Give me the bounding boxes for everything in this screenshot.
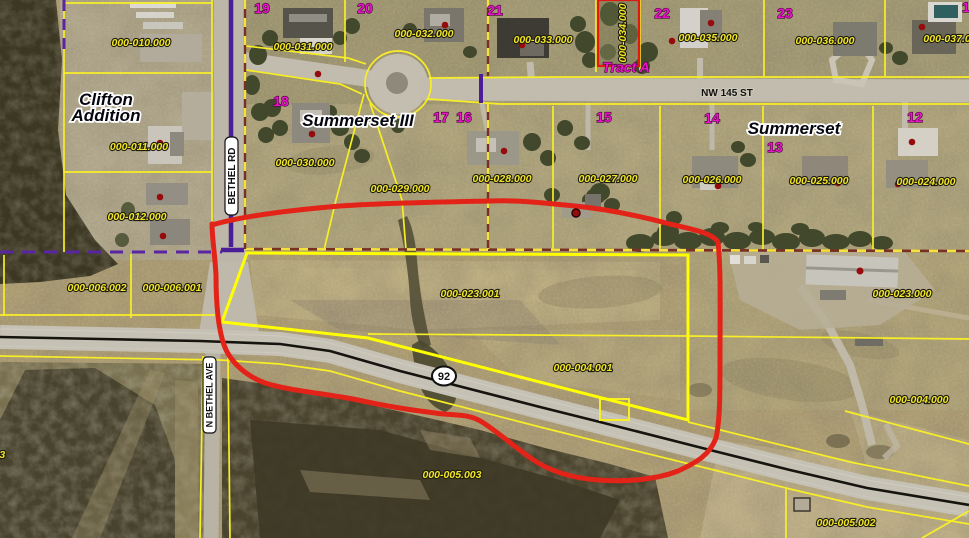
svg-text:000-036.000: 000-036.000 <box>796 35 855 47</box>
svg-text:13: 13 <box>767 139 783 155</box>
svg-text:20: 20 <box>357 0 373 16</box>
svg-text:000-034.000: 000-034.000 <box>617 3 629 62</box>
svg-text:17: 17 <box>433 109 449 125</box>
svg-text:N BETHEL AVE: N BETHEL AVE <box>205 363 215 428</box>
svg-text:Summerset: Summerset <box>748 119 842 138</box>
svg-text:000-005.003: 000-005.003 <box>423 469 482 481</box>
svg-text:22: 22 <box>654 5 670 21</box>
svg-text:Tract A: Tract A <box>602 59 649 75</box>
svg-text:000-011.000: 000-011.000 <box>110 141 168 153</box>
svg-text:19: 19 <box>254 0 270 16</box>
svg-text:000-024.000: 000-024.000 <box>897 176 956 188</box>
svg-text:15: 15 <box>596 109 612 125</box>
svg-text:23: 23 <box>777 5 793 21</box>
svg-text:000-005.002: 000-005.002 <box>817 517 876 529</box>
svg-text:000-027.000: 000-027.000 <box>579 173 638 185</box>
svg-text:000-029.000: 000-029.000 <box>371 183 430 195</box>
svg-text:000-028.000: 000-028.000 <box>473 173 532 185</box>
svg-text:000-033.000: 000-033.000 <box>514 34 573 46</box>
svg-text:000-026.000: 000-026.000 <box>683 174 742 186</box>
svg-text:000-030.000: 000-030.000 <box>276 157 335 169</box>
svg-text:000-023.000: 000-023.000 <box>873 288 932 300</box>
svg-text:000-037.00: 000-037.00 <box>923 33 969 45</box>
svg-text:000-010.000: 000-010.000 <box>112 37 171 49</box>
svg-text:000-023.001: 000-023.001 <box>441 288 500 300</box>
svg-text:14: 14 <box>704 110 720 126</box>
svg-text:1: 1 <box>962 0 969 15</box>
svg-text:000-031.000: 000-031.000 <box>274 41 333 53</box>
svg-text:21: 21 <box>487 2 503 18</box>
svg-text:NW 145 ST: NW 145 ST <box>701 88 753 99</box>
svg-text:Addition: Addition <box>71 106 141 125</box>
svg-text:000-004.000: 000-004.000 <box>890 394 949 406</box>
svg-text:000-006.002: 000-006.002 <box>68 282 127 294</box>
svg-text:18: 18 <box>273 93 289 109</box>
svg-text:000-006.001: 000-006.001 <box>143 282 202 294</box>
svg-text:BETHEL RD: BETHEL RD <box>227 147 238 204</box>
svg-text:000-032.000: 000-032.000 <box>395 28 454 40</box>
svg-text:Summerset III: Summerset III <box>302 111 415 130</box>
svg-text:000-025.000: 000-025.000 <box>790 175 849 187</box>
svg-text:92: 92 <box>438 371 450 383</box>
svg-text:000-035.000: 000-035.000 <box>679 32 738 44</box>
svg-text:000-003: 000-003 <box>0 449 5 461</box>
svg-text:000-012.000: 000-012.000 <box>108 211 167 223</box>
svg-text:000-004.001: 000-004.001 <box>554 362 613 374</box>
svg-text:12: 12 <box>907 109 923 125</box>
svg-text:16: 16 <box>456 109 472 125</box>
